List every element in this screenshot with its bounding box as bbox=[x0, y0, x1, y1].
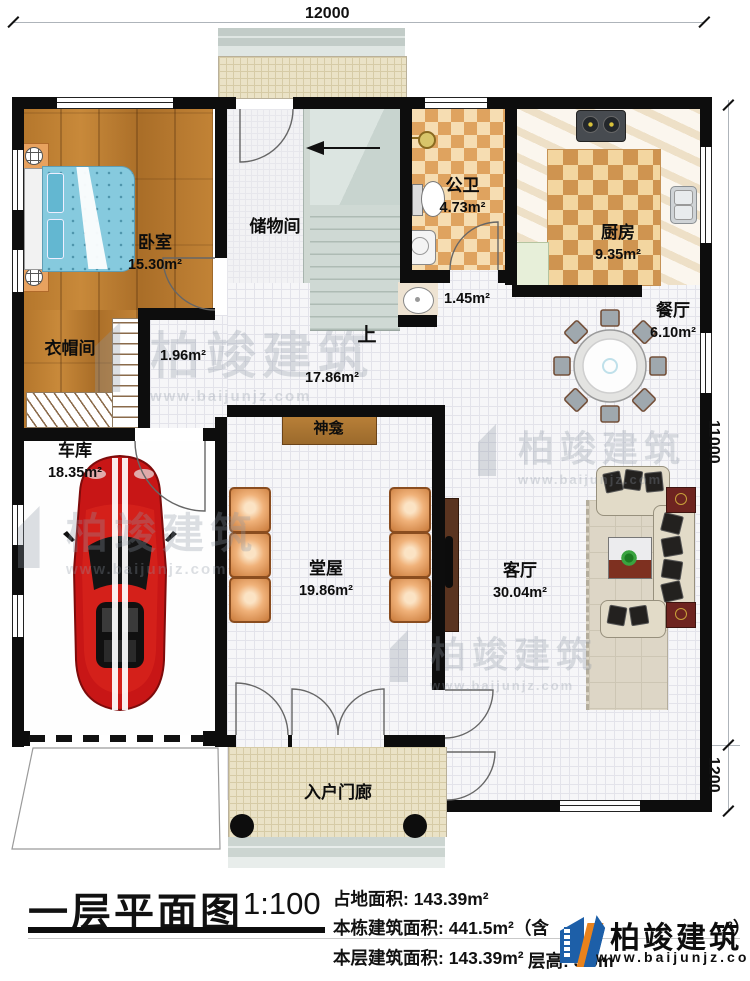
stair-direction-arrow bbox=[306, 141, 380, 155]
label-stairs-up: 上 bbox=[352, 324, 382, 348]
floor-area: 本层建筑面积: 143.39m² bbox=[333, 945, 524, 970]
brand-logo: 柏竣建筑 www.baijunjz.com bbox=[556, 903, 750, 969]
label-kitchen: 厨房9.35m² bbox=[570, 222, 666, 265]
label-shrine: 神龛 bbox=[282, 420, 375, 439]
brand-website: www.baijunjz.com bbox=[596, 949, 750, 965]
label-main-hall: 堂屋19.86m² bbox=[278, 558, 374, 601]
doors-overlay bbox=[0, 0, 750, 981]
label-storage: 储物间 bbox=[230, 216, 320, 237]
label-corridor-area: 1.96m² bbox=[150, 347, 216, 365]
label-garage: 车库18.35m² bbox=[25, 440, 125, 483]
label-bathroom: 公卫4.73m² bbox=[415, 175, 510, 218]
label-hall-area: 17.86m² bbox=[296, 369, 368, 387]
label-living: 客厅30.04m² bbox=[472, 560, 568, 603]
label-basin-area: 1.45m² bbox=[436, 290, 498, 308]
label-cloakroom: 衣帽间 bbox=[28, 338, 112, 359]
building-area-prefix: 本栋建筑面积: 441.5m²（含 bbox=[333, 915, 549, 940]
driveway bbox=[12, 748, 220, 849]
title-underline bbox=[28, 927, 325, 933]
plan-scale: 1:100 bbox=[243, 886, 321, 922]
land-area: 占地面积: 143.39m² bbox=[333, 886, 489, 911]
label-bedroom: 卧室15.30m² bbox=[95, 232, 215, 275]
label-porch: 入户门廊 bbox=[288, 782, 388, 803]
floor-plan-page: 12000 11000 1200 柏竣建筑 www.baijunjz.com bbox=[0, 0, 750, 981]
label-dining: 餐厅6.10m² bbox=[630, 300, 716, 343]
